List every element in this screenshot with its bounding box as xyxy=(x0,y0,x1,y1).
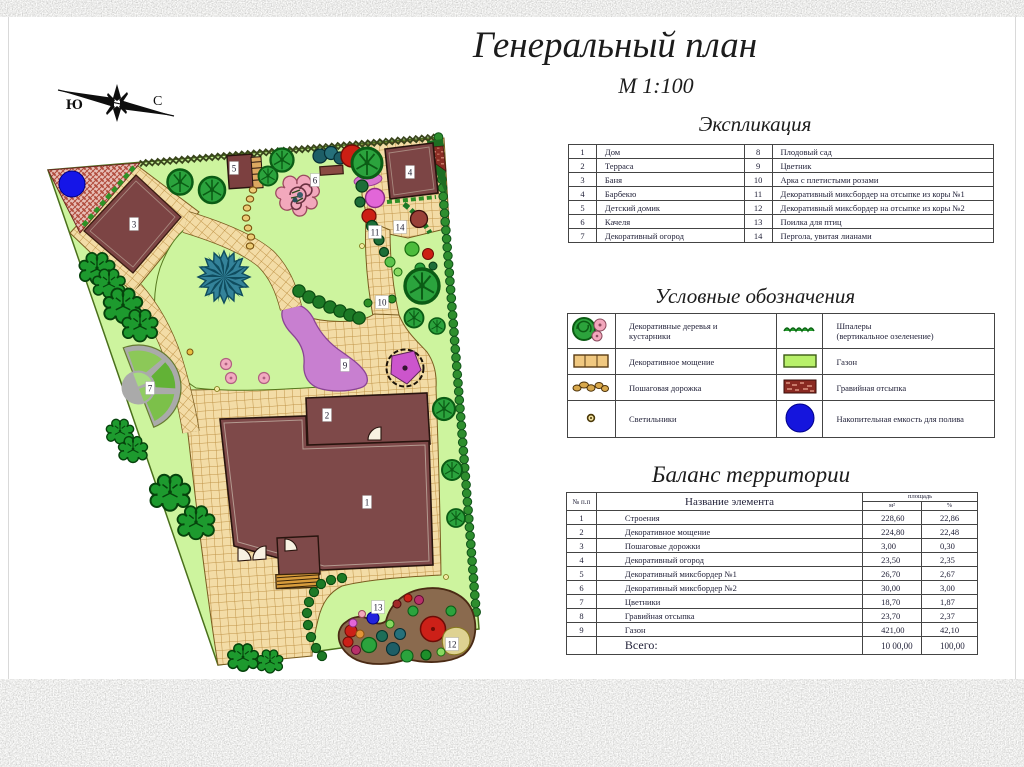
svg-text:С: С xyxy=(153,94,162,109)
svg-text:5: 5 xyxy=(232,164,237,174)
svg-text:9: 9 xyxy=(343,361,348,371)
svg-text:2: 2 xyxy=(325,411,330,421)
svg-text:14: 14 xyxy=(396,223,406,233)
svg-text:10: 10 xyxy=(378,298,388,308)
svg-text:12: 12 xyxy=(448,640,457,650)
svg-text:13: 13 xyxy=(374,603,384,613)
svg-text:1: 1 xyxy=(365,498,370,508)
svg-text:Ю: Ю xyxy=(66,97,83,113)
svg-text:3: 3 xyxy=(132,220,137,230)
svg-text:11: 11 xyxy=(371,228,380,238)
svg-text:6: 6 xyxy=(313,176,318,186)
svg-text:7: 7 xyxy=(148,384,153,394)
svg-text:4: 4 xyxy=(408,168,413,178)
